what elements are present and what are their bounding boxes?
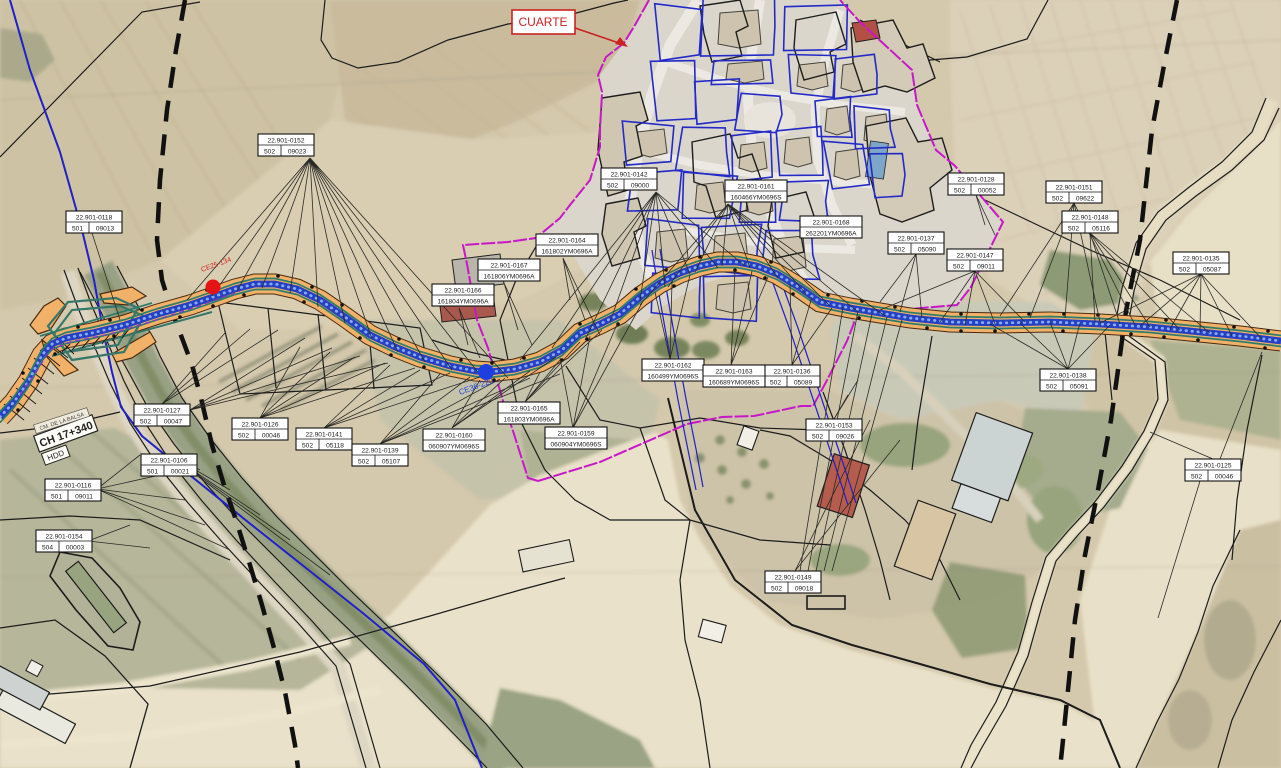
svg-text:22.901-0153: 22.901-0153 [815, 423, 852, 430]
svg-text:09000: 09000 [631, 182, 650, 189]
svg-text:160466YM0696S: 160466YM0696S [731, 194, 783, 201]
svg-text:502: 502 [771, 585, 782, 592]
svg-text:05090: 05090 [918, 246, 937, 253]
svg-text:22.901-0147: 22.901-0147 [956, 253, 993, 260]
svg-text:22.901-0161: 22.901-0161 [737, 184, 774, 191]
svg-text:CUARTE: CUARTE [518, 15, 567, 29]
svg-text:501: 501 [72, 225, 83, 232]
svg-text:060907YM0696S: 060907YM0696S [429, 443, 481, 450]
svg-text:22.901-0148: 22.901-0148 [1071, 215, 1108, 222]
svg-text:00046: 00046 [1215, 473, 1234, 480]
svg-text:22.901-0141: 22.901-0141 [305, 432, 342, 439]
svg-text:22.901-0116: 22.901-0116 [55, 483, 92, 490]
svg-text:22.901-0136: 22.901-0136 [773, 369, 810, 376]
svg-text:504: 504 [42, 544, 53, 551]
svg-text:22.901-0127: 22.901-0127 [143, 408, 180, 415]
svg-text:22.901-0164: 22.901-0164 [548, 238, 585, 245]
svg-text:09023: 09023 [288, 148, 307, 155]
svg-text:22.901-0151: 22.901-0151 [1055, 185, 1092, 192]
svg-text:05116: 05116 [1092, 225, 1110, 232]
svg-text:00046: 00046 [262, 432, 281, 439]
svg-text:160689YM0696S: 160689YM0696S [709, 379, 761, 386]
svg-text:00052: 00052 [978, 187, 997, 194]
svg-text:22.901-0160: 22.901-0160 [435, 433, 472, 440]
svg-text:502: 502 [1052, 195, 1063, 202]
svg-text:502: 502 [770, 379, 781, 386]
svg-text:00021: 00021 [171, 468, 190, 475]
svg-text:22.901-0159: 22.901-0159 [557, 431, 594, 438]
svg-text:22.901-0135: 22.901-0135 [1182, 256, 1219, 263]
svg-text:262201YM0696A: 262201YM0696A [806, 230, 858, 237]
svg-text:22.901-0166: 22.901-0166 [444, 288, 481, 295]
svg-text:22.901-0137: 22.901-0137 [897, 236, 934, 243]
svg-text:22.901-0152: 22.901-0152 [267, 138, 304, 145]
svg-text:161806YM0696A: 161806YM0696A [484, 273, 536, 280]
svg-text:160499YM0696S: 160499YM0696S [648, 373, 700, 380]
svg-text:09013: 09013 [96, 225, 115, 232]
svg-text:09026: 09026 [836, 433, 855, 440]
svg-text:05089: 05089 [794, 379, 813, 386]
svg-text:00003: 00003 [66, 544, 85, 551]
svg-text:22.901-0154: 22.901-0154 [45, 534, 82, 541]
svg-text:161803YM0696A: 161803YM0696A [504, 416, 556, 423]
svg-text:502: 502 [1068, 225, 1079, 232]
svg-text:22.901-0168: 22.901-0168 [812, 220, 849, 227]
svg-text:502: 502 [264, 148, 275, 155]
svg-text:060904YM0696S: 060904YM0696S [551, 441, 603, 448]
svg-text:502: 502 [358, 458, 369, 465]
svg-text:502: 502 [607, 182, 618, 189]
svg-text:502: 502 [302, 442, 313, 449]
svg-text:05087: 05087 [1203, 266, 1222, 273]
svg-text:502: 502 [953, 263, 964, 270]
svg-text:00047: 00047 [164, 418, 183, 425]
svg-text:161804YM0696A: 161804YM0696A [438, 298, 490, 305]
svg-text:22.901-0106: 22.901-0106 [150, 458, 187, 465]
svg-text:502: 502 [1191, 473, 1202, 480]
svg-text:22.901-0167: 22.901-0167 [490, 263, 527, 270]
svg-text:22.901-0142: 22.901-0142 [610, 172, 647, 179]
svg-text:22.901-0139: 22.901-0139 [361, 448, 398, 455]
svg-text:22.901-0125: 22.901-0125 [1194, 463, 1231, 470]
svg-text:502: 502 [238, 432, 249, 439]
svg-text:05118: 05118 [326, 442, 344, 449]
svg-text:22.901-0128: 22.901-0128 [957, 177, 994, 184]
svg-text:22.901-0165: 22.901-0165 [510, 406, 547, 413]
svg-text:22.901-0126: 22.901-0126 [241, 422, 278, 429]
svg-text:09622: 09622 [1076, 195, 1095, 202]
svg-text:501: 501 [147, 468, 158, 475]
svg-text:05107: 05107 [382, 458, 401, 465]
svg-text:09011: 09011 [977, 263, 995, 270]
svg-text:22.901-0163: 22.901-0163 [715, 369, 752, 376]
svg-text:502: 502 [140, 418, 151, 425]
svg-text:501: 501 [51, 493, 62, 500]
svg-text:502: 502 [894, 246, 905, 253]
svg-text:502: 502 [1179, 266, 1190, 273]
svg-text:502: 502 [954, 187, 965, 194]
svg-text:22.901-0138: 22.901-0138 [1049, 373, 1086, 380]
svg-text:09018: 09018 [795, 585, 814, 592]
svg-text:09011: 09011 [75, 493, 93, 500]
svg-text:22.901-0149: 22.901-0149 [774, 575, 811, 582]
svg-text:502: 502 [812, 433, 823, 440]
svg-text:22.901-0118: 22.901-0118 [76, 215, 113, 222]
svg-text:05091: 05091 [1070, 383, 1089, 390]
svg-text:502: 502 [1046, 383, 1057, 390]
svg-text:22.901-0162: 22.901-0162 [654, 363, 691, 370]
svg-text:161802YM0696A: 161802YM0696A [542, 248, 594, 255]
